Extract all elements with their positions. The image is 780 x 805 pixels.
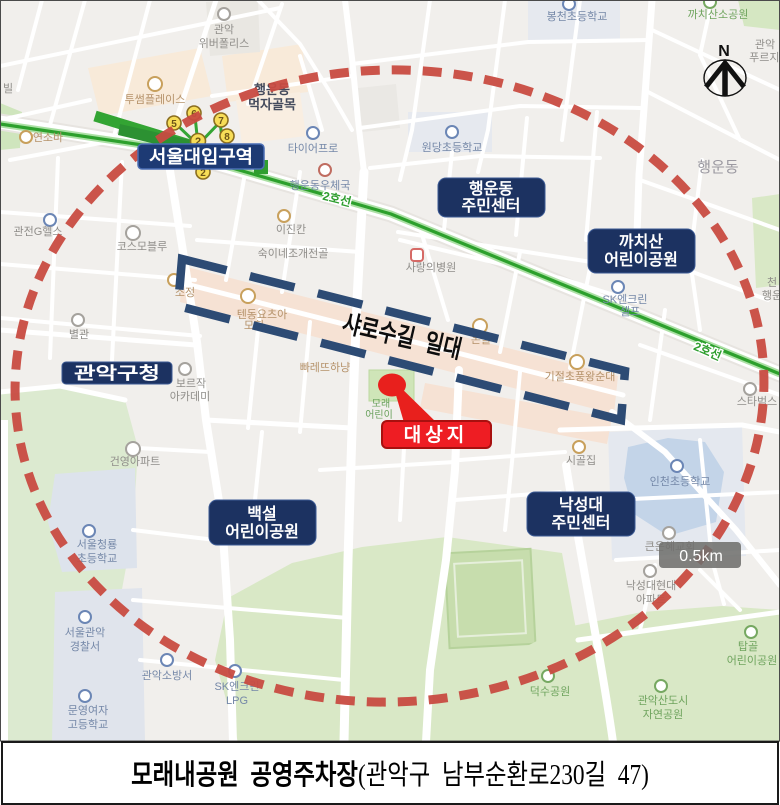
svg-text:기절초풍왕순대: 기절초풍왕순대 xyxy=(545,370,616,383)
svg-text:낙성대: 낙성대 xyxy=(559,496,603,514)
svg-text:N: N xyxy=(718,43,730,60)
svg-text:빌: 빌 xyxy=(3,82,13,95)
svg-text:7: 7 xyxy=(218,116,224,127)
svg-text:푸르지S: 푸르지S xyxy=(749,51,780,64)
svg-text:서울대입구역: 서울대입구역 xyxy=(149,146,253,167)
svg-text:이진칸: 이진칸 xyxy=(276,223,306,236)
svg-text:서울청룡: 서울청룡 xyxy=(77,538,117,551)
svg-text:스타벅스: 스타벅스 xyxy=(737,395,777,408)
svg-text:자연공원: 자연공원 xyxy=(643,708,683,721)
svg-text:별관: 별관 xyxy=(69,328,89,341)
svg-text:타이어프로: 타이어프로 xyxy=(288,142,339,155)
svg-text:어린이공원: 어린이공원 xyxy=(727,654,778,667)
svg-text:주민센터: 주민센터 xyxy=(552,514,611,532)
svg-text:모래: 모래 xyxy=(372,398,390,410)
svg-text:어린이공원: 어린이공원 xyxy=(604,251,678,269)
svg-text:SK엔크린: SK엔크린 xyxy=(602,293,647,306)
svg-text:행운동: 행운동 xyxy=(697,159,739,176)
svg-text:관악구청: 관악구청 xyxy=(74,363,160,383)
svg-text:투썸플레이스: 투썸플레이스 xyxy=(125,93,186,106)
svg-text:관악산도시: 관악산도시 xyxy=(638,694,689,707)
svg-text:아카데미: 아카데미 xyxy=(170,390,210,403)
svg-text:건영아파트: 건영아파트 xyxy=(110,455,161,468)
svg-text:LPG: LPG xyxy=(226,695,248,707)
svg-text:까치산소공원: 까치산소공원 xyxy=(688,8,749,21)
svg-text:봉천초등학교: 봉천초등학교 xyxy=(547,9,608,23)
svg-text:8: 8 xyxy=(224,132,230,143)
svg-text:위버폴리스: 위버폴리스 xyxy=(199,37,250,50)
svg-text:시골집: 시골집 xyxy=(566,454,596,467)
svg-text:행운동우체국: 행운동우체국 xyxy=(290,179,351,192)
svg-text:대상지: 대상지 xyxy=(404,424,468,446)
svg-text:어린이공원: 어린이공원 xyxy=(225,523,299,541)
svg-text:숙이네조개전골: 숙이네조개전골 xyxy=(258,247,329,260)
svg-text:관전G헬스: 관전G헬스 xyxy=(13,225,62,238)
svg-text:먹자골목: 먹자골목 xyxy=(248,97,296,112)
svg-text:낙성대현대: 낙성대현대 xyxy=(626,579,677,592)
svg-text:빠레뜨하냥: 빠레뜨하냥 xyxy=(300,360,351,374)
svg-text:주민센터: 주민센터 xyxy=(462,197,521,215)
svg-text:탑골: 탑골 xyxy=(738,640,758,653)
svg-text:서울관악: 서울관악 xyxy=(65,626,105,639)
svg-text:사랑의병원: 사랑의병원 xyxy=(406,261,457,274)
svg-text:보르작: 보르작 xyxy=(176,377,206,390)
svg-text:행운동: 행운동 xyxy=(469,180,513,198)
svg-text:경찰서: 경찰서 xyxy=(70,640,100,653)
svg-text:초등학교: 초등학교 xyxy=(77,552,117,565)
svg-text:고등학교: 고등학교 xyxy=(68,718,108,731)
svg-text:관악소방서: 관악소방서 xyxy=(142,669,193,682)
svg-text:0.5km: 0.5km xyxy=(679,548,723,565)
svg-text:백설: 백설 xyxy=(247,505,276,523)
svg-text:연소바: 연소바 xyxy=(33,131,63,144)
svg-text:관악: 관악 xyxy=(214,23,234,36)
svg-text:코스모블루: 코스모블루 xyxy=(117,240,168,253)
svg-text:관악: 관악 xyxy=(755,38,775,51)
svg-text:인천초등학교: 인천초등학교 xyxy=(650,474,711,488)
svg-text:원당초등학교: 원당초등학교 xyxy=(422,141,483,154)
svg-text:덕수공원: 덕수공원 xyxy=(530,685,570,698)
svg-text:문영여자: 문영여자 xyxy=(68,704,108,717)
svg-text:천: 천 xyxy=(767,275,777,289)
svg-text:행운: 행운 xyxy=(762,289,780,302)
svg-text:까치산: 까치산 xyxy=(619,233,663,251)
svg-text:셀프: 셀프 xyxy=(620,305,640,318)
svg-text:어린이: 어린이 xyxy=(365,409,393,421)
